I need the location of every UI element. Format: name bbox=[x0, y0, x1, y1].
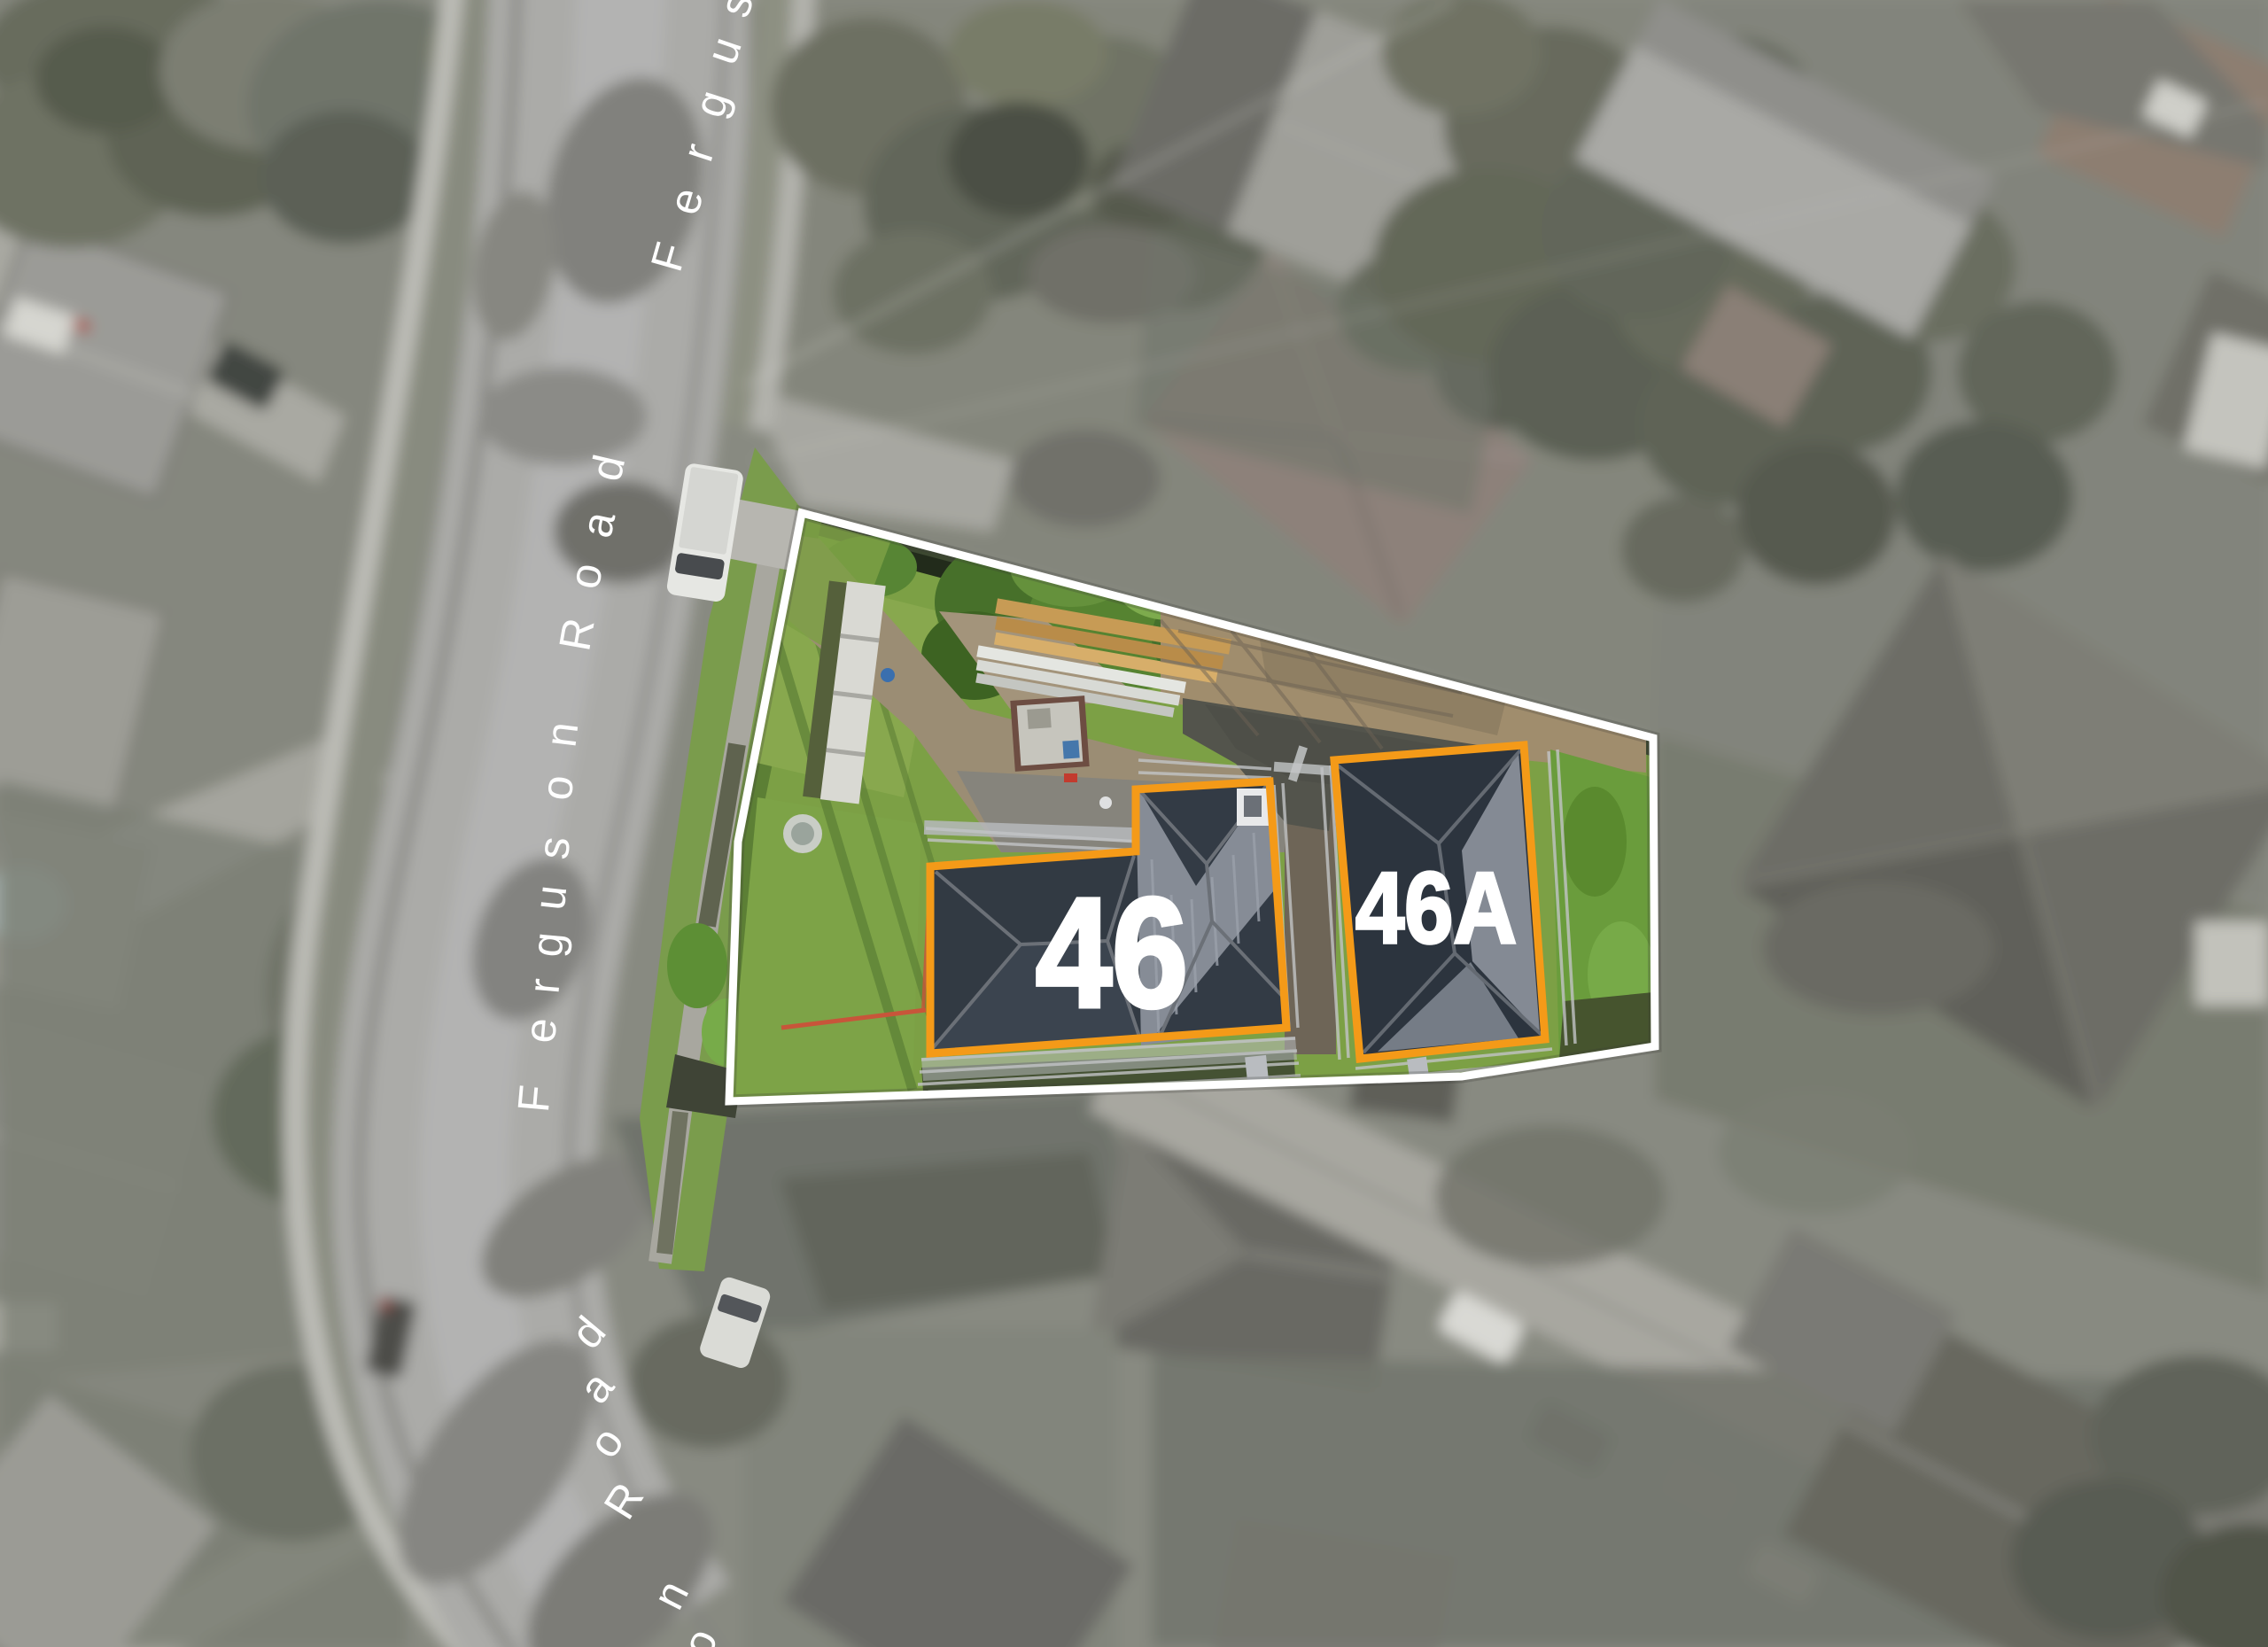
svg-text:46A: 46A bbox=[1355, 852, 1517, 965]
svg-text:e: e bbox=[515, 1016, 566, 1045]
svg-text:46: 46 bbox=[1036, 866, 1188, 1040]
svg-text:u: u bbox=[524, 882, 577, 913]
svg-text:F: F bbox=[509, 1083, 560, 1114]
svg-text:g: g bbox=[522, 930, 573, 959]
